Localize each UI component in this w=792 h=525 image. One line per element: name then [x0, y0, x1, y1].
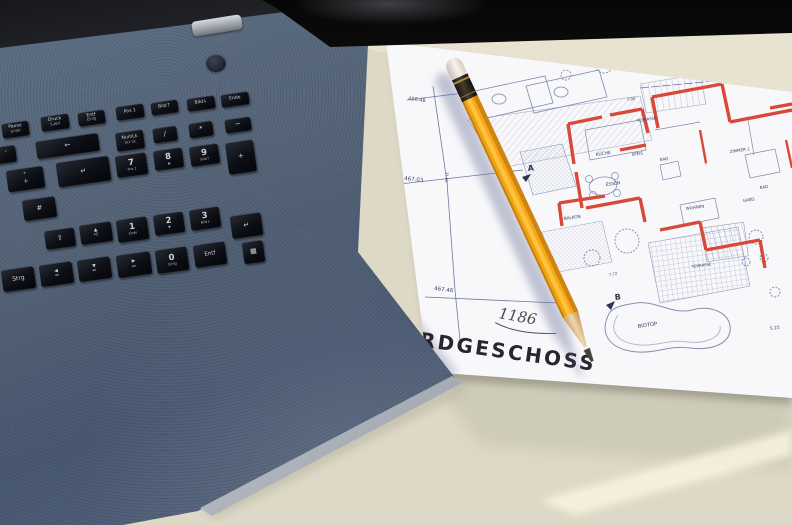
key-strg: Strg [1, 266, 37, 292]
photo-scene: 456.48 467.03 37.10 467.46 467.36 31.60 … [0, 0, 792, 525]
key-np1: 1Ende [116, 216, 150, 243]
key-numlk: NumLkScr Lk [115, 129, 145, 152]
key-cursor-right: ▶▸▸ [116, 251, 153, 279]
key-np-entf: Entf [193, 241, 228, 268]
power-button [206, 54, 226, 72]
key-cursor-left: ◀◂◂ [39, 261, 75, 287]
key-np-plus: + [225, 139, 257, 175]
key-np8: 8▲ [153, 147, 185, 171]
key-acute: ´ [0, 145, 17, 165]
key-np0: 0Einfg [154, 246, 189, 274]
key-np-enter: ↵ [230, 212, 264, 239]
key-np3: 3Bild↓ [189, 206, 222, 231]
key-np7: 7Pos 1 [115, 152, 149, 178]
key-calculator: ▦ [242, 240, 266, 265]
key-np9: 9Bild↑ [189, 143, 221, 167]
key-np2: 2▼ [153, 211, 186, 236]
key-cursor-down: ▼▸▸ [77, 256, 113, 282]
laptop: PauseUntbr DruckS-Abf EntfEinfg Pos 1 Bi… [0, 0, 792, 525]
